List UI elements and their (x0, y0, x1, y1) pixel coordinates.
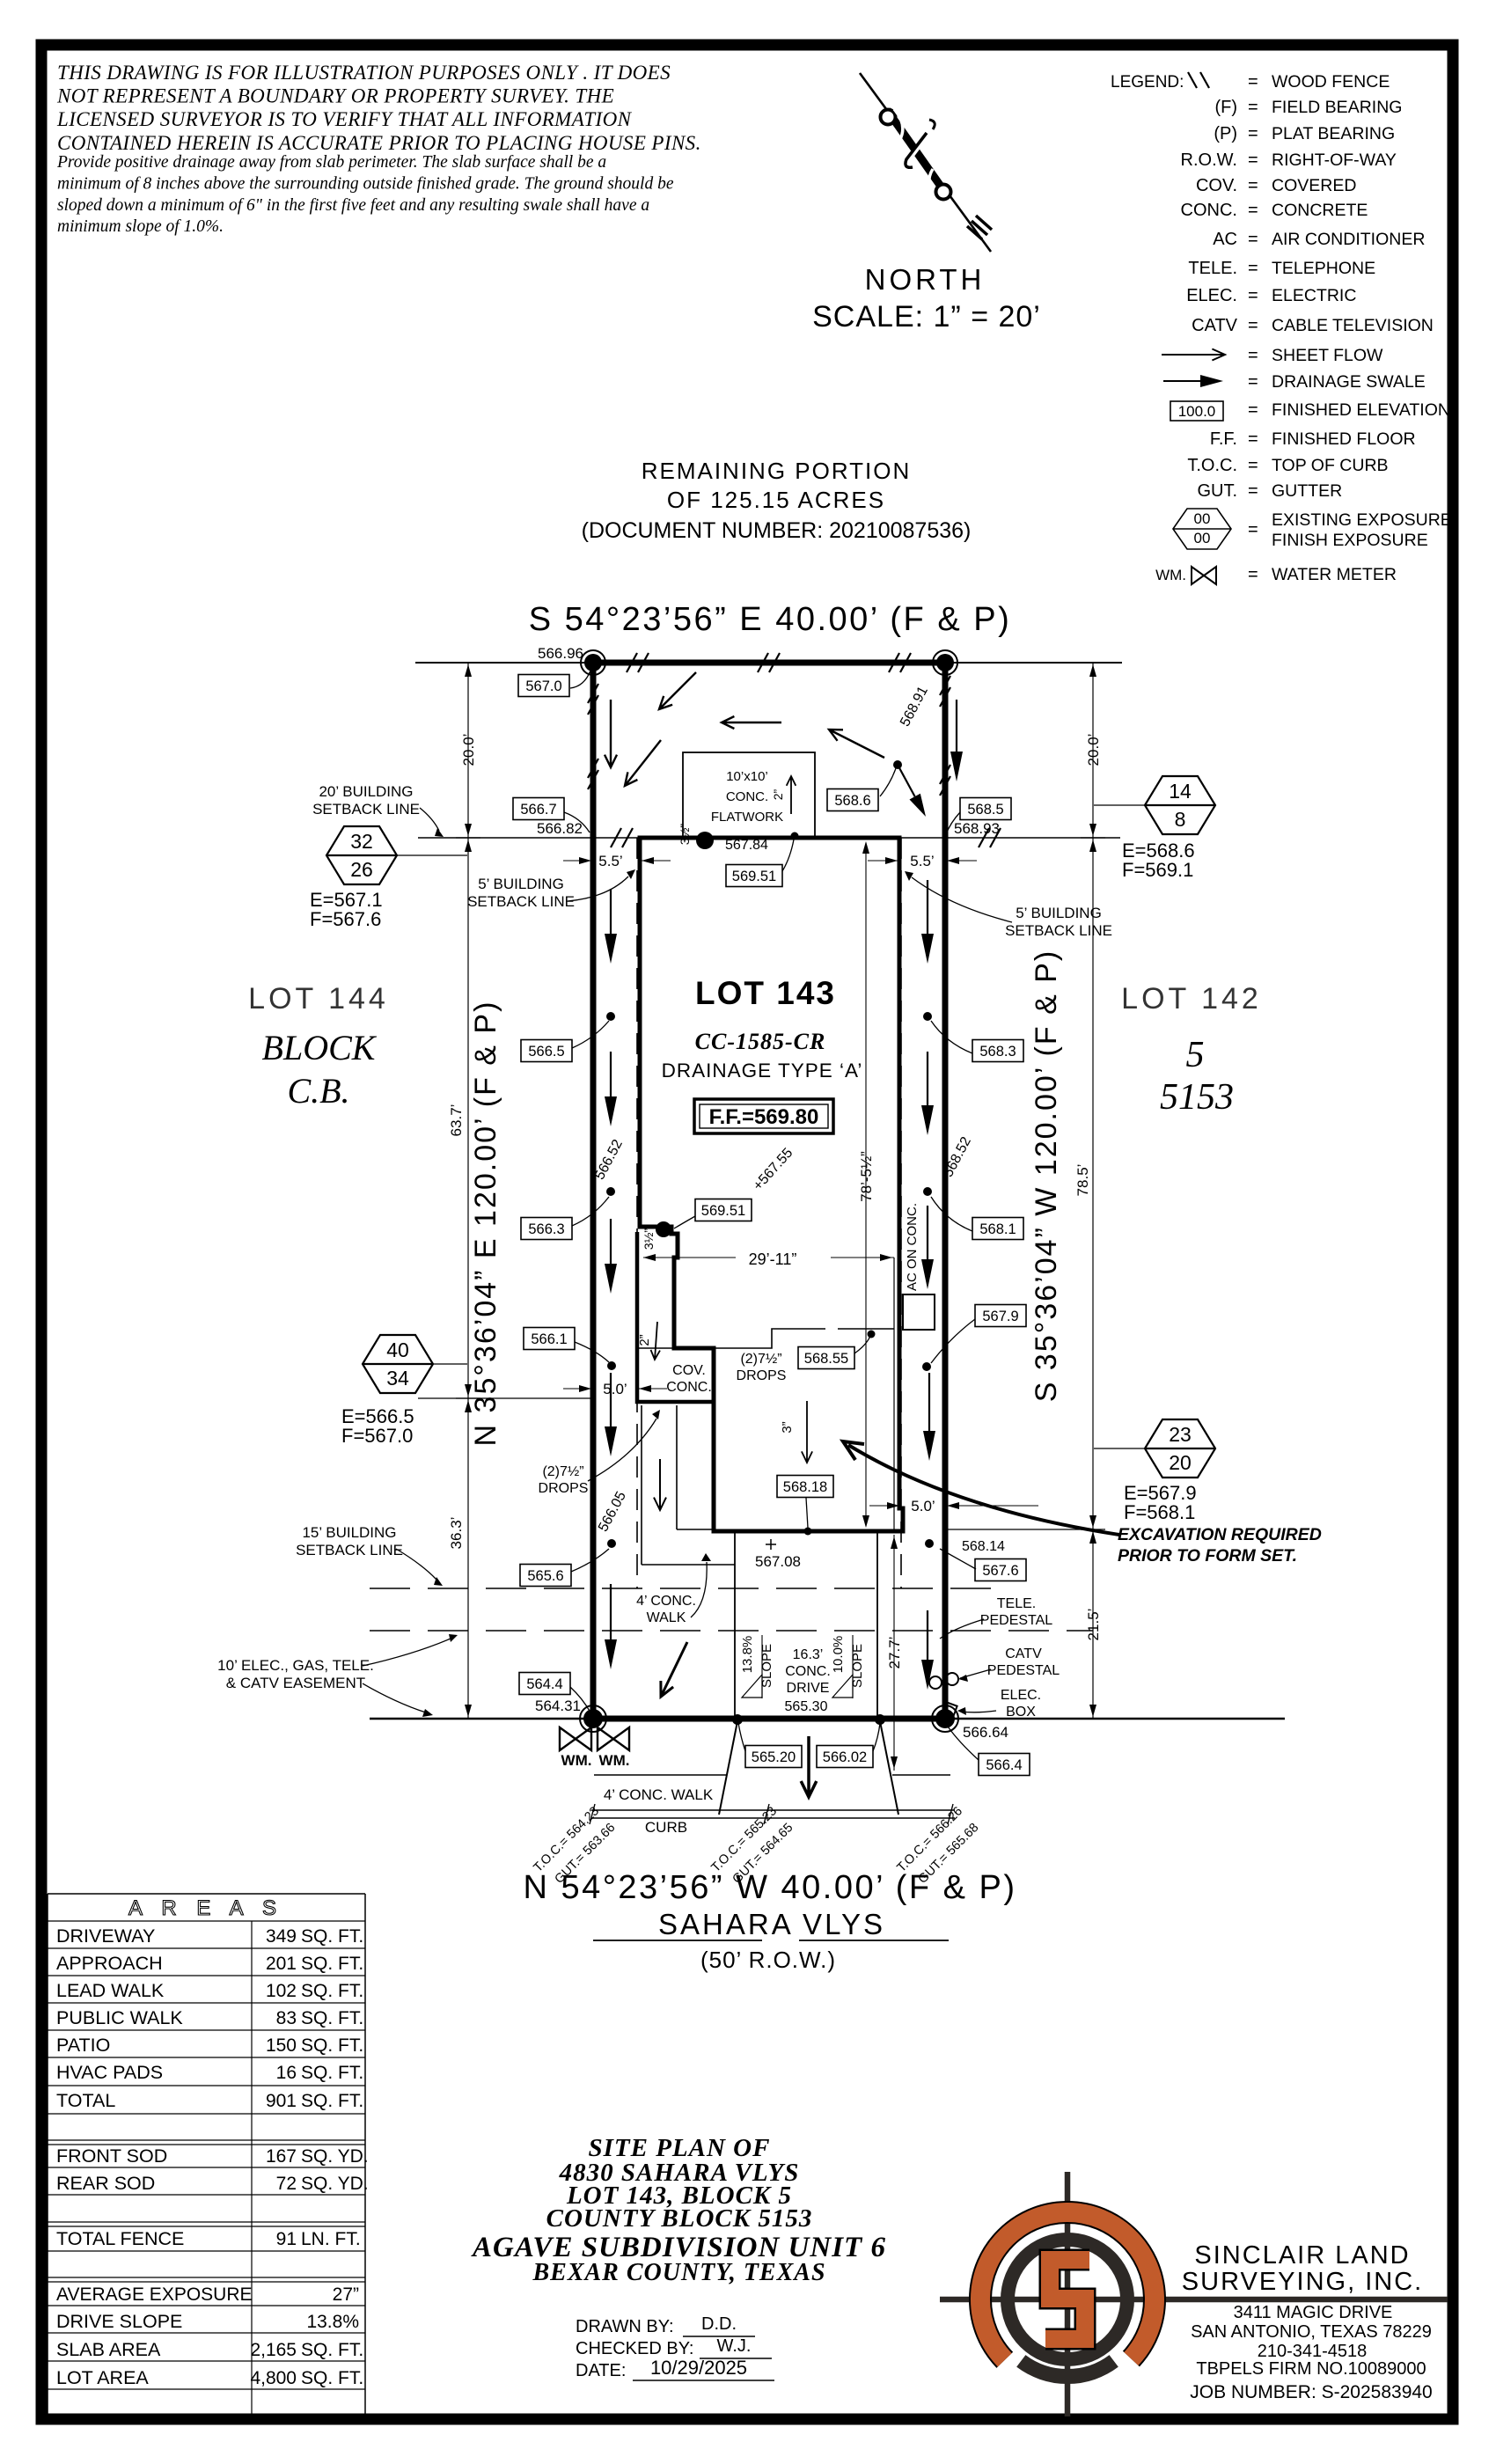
svg-text:SQ. FT.: SQ. FT. (301, 2340, 363, 2360)
svg-text:minimum of 8 inches above the: minimum of 8 inches above the surroundin… (57, 174, 674, 193)
svg-text:D.D.: D.D. (701, 2314, 737, 2334)
svg-text:C.B.: C.B. (287, 1071, 349, 1111)
svg-text:20.0’: 20.0’ (1085, 734, 1102, 766)
svg-text:WATER METER: WATER METER (1272, 565, 1397, 584)
svg-text:COV.: COV. (672, 1363, 706, 1378)
svg-text:10/29/2025: 10/29/2025 (650, 2357, 747, 2379)
svg-text:SURVEYING, INC.: SURVEYING, INC. (1182, 2268, 1423, 2296)
svg-text:W.J.: W.J. (717, 2336, 752, 2356)
svg-text:TBPELS FIRM NO.10089000: TBPELS FIRM NO.10089000 (1196, 2359, 1426, 2379)
svg-text:564.31: 564.31 (535, 1698, 581, 1714)
svg-text:CONC.: CONC. (666, 1380, 712, 1395)
svg-text:SQ. FT.: SQ. FT. (301, 1926, 363, 1947)
svg-text:210-341-4518: 210-341-4518 (1258, 2342, 1368, 2361)
svg-text:83: 83 (276, 2008, 297, 2028)
svg-text:AC ON CONC.: AC ON CONC. (905, 1203, 920, 1291)
svg-text:3½”: 3½” (642, 1228, 656, 1250)
svg-text:SQ. FT.: SQ. FT. (301, 2008, 363, 2028)
svg-text:DRIVE: DRIVE (787, 1681, 830, 1696)
svg-text:568.1: 568.1 (979, 1221, 1016, 1237)
svg-text:SAN ANTONIO, TEXAS 78229: SAN ANTONIO, TEXAS 78229 (1191, 2322, 1432, 2342)
svg-text:566.3: 566.3 (528, 1221, 564, 1237)
svg-text:CURB: CURB (645, 1819, 687, 1836)
svg-text:(50’ R.O.W.): (50’ R.O.W.) (700, 1947, 836, 1973)
svg-text:GUT.: GUT. (1197, 481, 1237, 501)
svg-text:5.0’: 5.0’ (911, 1498, 935, 1514)
svg-text:10.0%: 10.0% (831, 1636, 846, 1674)
svg-text:PEDESTAL: PEDESTAL (987, 1663, 1060, 1678)
svg-text:5153: 5153 (1160, 1077, 1234, 1118)
svg-text:72: 72 (276, 2174, 297, 2194)
svg-text:SETBACK LINE: SETBACK LINE (312, 801, 420, 818)
svg-text:PRIOR TO FORM SET.: PRIOR TO FORM SET. (1118, 1546, 1297, 1566)
svg-text:27”: 27” (333, 2284, 359, 2305)
svg-text:567.9: 567.9 (982, 1309, 1018, 1324)
svg-text:=: = (1248, 456, 1258, 475)
svg-text:CHECKED BY:: CHECKED BY: (576, 2339, 693, 2358)
svg-text:AVERAGE EXPOSURE: AVERAGE EXPOSURE (56, 2284, 253, 2305)
svg-text:13.8%: 13.8% (740, 1636, 755, 1674)
svg-text:SQ. FT.: SQ. FT. (301, 2368, 363, 2388)
svg-text:00: 00 (1194, 510, 1211, 527)
svg-text:NORTH: NORTH (865, 263, 986, 296)
svg-text:565.20: 565.20 (752, 1749, 796, 1765)
svg-text:PEDESTAL: PEDESTAL (980, 1613, 1053, 1628)
svg-text:PUBLIC WALK: PUBLIC WALK (56, 2007, 183, 2028)
svg-text:LOT 143: LOT 143 (695, 975, 836, 1011)
svg-text:=: = (1248, 98, 1258, 117)
svg-text:WM.: WM. (561, 1752, 592, 1769)
svg-text:20’ BUILDING: 20’ BUILDING (319, 783, 413, 800)
svg-text:DRAINAGE SWALE: DRAINAGE SWALE (1272, 372, 1426, 392)
svg-text:63.7’: 63.7’ (448, 1104, 465, 1137)
svg-text:=: = (1248, 150, 1258, 170)
svg-text:LICENSED SURVEYOR IS TO VERIFY: LICENSED SURVEYOR IS TO VERIFY THAT ALL … (56, 108, 633, 130)
svg-text:5’ BUILDING: 5’ BUILDING (478, 876, 564, 892)
svg-text:ELECTRIC: ELECTRIC (1272, 286, 1356, 305)
svg-text:565.30: 565.30 (785, 1699, 828, 1714)
svg-text:APPROACH: APPROACH (56, 1953, 163, 1974)
svg-text:Provide positive drainage away: Provide positive drainage away from slab… (56, 153, 606, 172)
svg-text:00: 00 (1194, 530, 1211, 546)
svg-text:FLATWORK: FLATWORK (711, 810, 783, 825)
svg-text:LOT AREA: LOT AREA (56, 2367, 149, 2388)
svg-text:CABLE TELEVISION: CABLE TELEVISION (1272, 316, 1434, 335)
svg-text:FINISHED ELEVATION: FINISHED ELEVATION (1272, 400, 1450, 420)
svg-text:=: = (1248, 429, 1258, 449)
svg-text:WM.: WM. (1155, 567, 1186, 583)
svg-text:566.7: 566.7 (520, 802, 556, 818)
svg-text:F.F.=569.80: F.F.=569.80 (709, 1105, 819, 1129)
svg-text:4,800: 4,800 (250, 2368, 297, 2388)
svg-text:CATV: CATV (1005, 1646, 1042, 1661)
svg-text:568.5: 568.5 (967, 802, 1003, 818)
svg-text:=: = (1248, 124, 1258, 143)
svg-text:150: 150 (266, 2035, 297, 2056)
svg-text:567.08: 567.08 (755, 1553, 801, 1570)
svg-text:78.5’: 78.5’ (1074, 1164, 1091, 1197)
svg-text:568.93: 568.93 (954, 820, 1000, 837)
svg-text:=: = (1248, 372, 1258, 392)
svg-text:N 54°23’56” W 40.00’ (F & P): N 54°23’56” W 40.00’ (F & P) (523, 1869, 1016, 1906)
svg-text:ELEC.: ELEC. (1001, 1688, 1041, 1703)
svg-text:2”: 2” (771, 788, 785, 800)
svg-text:RIGHT-OF-WAY: RIGHT-OF-WAY (1272, 150, 1397, 170)
svg-text:SHEET FLOW: SHEET FLOW (1272, 346, 1383, 365)
svg-text:567.0: 567.0 (525, 678, 561, 694)
svg-text:=: = (1248, 520, 1258, 539)
svg-text:CONC.: CONC. (785, 1664, 831, 1679)
svg-text:F=568.1: F=568.1 (1124, 1501, 1195, 1523)
svg-text:LOT 142: LOT 142 (1121, 982, 1262, 1016)
svg-text:5’ BUILDING: 5’ BUILDING (1016, 905, 1102, 921)
svg-text:REMAINING PORTION: REMAINING PORTION (642, 458, 912, 484)
svg-text:(DOCUMENT NUMBER: 20210087536: (DOCUMENT NUMBER: 20210087536) (582, 518, 972, 543)
svg-text:PLAT BEARING: PLAT BEARING (1272, 124, 1395, 143)
svg-text:40: 40 (386, 1338, 409, 1361)
svg-text:CONC.: CONC. (1181, 201, 1237, 220)
svg-text:349: 349 (266, 1926, 297, 1947)
svg-text:4’ CONC. WALK: 4’ CONC. WALK (604, 1786, 714, 1803)
svg-text:26: 26 (350, 858, 373, 881)
svg-text:5.5’: 5.5’ (910, 853, 934, 869)
svg-text:569.51: 569.51 (732, 869, 776, 884)
svg-text:WM.: WM. (599, 1752, 630, 1769)
svg-text:SETBACK LINE: SETBACK LINE (1005, 922, 1112, 939)
svg-text:JOB NUMBER: S-202583940: JOB NUMBER: S-202583940 (1190, 2382, 1432, 2402)
svg-text:TELE.: TELE. (997, 1596, 1036, 1611)
svg-text:78’-5½”: 78’-5½” (858, 1151, 875, 1202)
svg-text:(2)7½”: (2)7½” (740, 1352, 781, 1367)
svg-text:OF 125.15 ACRES: OF 125.15 ACRES (667, 487, 885, 513)
svg-text:SQ. YD.: SQ. YD. (301, 2174, 369, 2194)
svg-text:DRIVEWAY: DRIVEWAY (56, 1925, 155, 1947)
svg-text:=: = (1248, 176, 1258, 195)
svg-text:SINCLAIR LAND: SINCLAIR LAND (1194, 2241, 1410, 2270)
svg-text:16: 16 (276, 2063, 297, 2083)
svg-text:SETBACK LINE: SETBACK LINE (467, 893, 575, 910)
svg-text:CONCRETE: CONCRETE (1272, 201, 1368, 220)
svg-text:=: = (1248, 286, 1258, 305)
svg-text:100.0: 100.0 (1178, 403, 1216, 420)
svg-text:567.84: 567.84 (725, 838, 768, 853)
svg-text:SAHARA VLYS: SAHARA VLYS (658, 1908, 885, 1940)
svg-text:CONC.: CONC. (726, 789, 768, 804)
svg-text:CATV: CATV (1192, 316, 1238, 335)
svg-text:DATE:: DATE: (576, 2361, 626, 2380)
svg-text:569.51: 569.51 (701, 1203, 745, 1219)
svg-text:568.55: 568.55 (804, 1351, 848, 1367)
svg-text:=: = (1248, 565, 1258, 584)
svg-text:567.6: 567.6 (982, 1563, 1018, 1579)
svg-text:SQ. FT.: SQ. FT. (301, 1981, 363, 2001)
svg-text:(F): (F) (1214, 98, 1237, 117)
svg-text:10’x10’: 10’x10’ (726, 769, 768, 784)
svg-text:TELEPHONE: TELEPHONE (1272, 259, 1375, 278)
svg-text:WALK: WALK (647, 1610, 686, 1625)
svg-text:167: 167 (266, 2146, 297, 2167)
svg-text:F=567.0: F=567.0 (341, 1425, 413, 1447)
svg-text:=: = (1248, 201, 1258, 220)
svg-text:566.96: 566.96 (538, 645, 583, 662)
svg-text:S 35°36’04” W 120.00’ (F & P): S 35°36’04” W 120.00’ (F & P) (1030, 950, 1063, 1402)
svg-text:WOOD FENCE: WOOD FENCE (1272, 72, 1390, 92)
svg-text:566.02: 566.02 (823, 1749, 867, 1765)
svg-text:THIS DRAWING IS FOR ILLUSTRATI: THIS DRAWING IS FOR ILLUSTRATION PURPOSE… (57, 62, 671, 84)
svg-text:SQ. YD.: SQ. YD. (301, 2146, 369, 2167)
svg-text:N 35°36’04” E 120.00’ (F & P): N 35°36’04” E 120.00’ (F & P) (469, 1001, 502, 1447)
svg-text:23: 23 (1169, 1423, 1192, 1446)
svg-text:ELEC.: ELEC. (1186, 286, 1237, 305)
svg-text:20.0’: 20.0’ (460, 734, 477, 766)
svg-text:DROPS: DROPS (737, 1368, 787, 1383)
svg-text:=: = (1248, 346, 1258, 365)
svg-text:COUNTY BLOCK 5153: COUNTY BLOCK 5153 (546, 2204, 813, 2233)
svg-text:DRAWN BY:: DRAWN BY: (576, 2317, 674, 2336)
svg-text:BLOCK: BLOCK (262, 1028, 378, 1067)
svg-text:566.4: 566.4 (986, 1757, 1022, 1773)
svg-text:568.3: 568.3 (979, 1044, 1016, 1060)
svg-text:102: 102 (266, 1981, 297, 2001)
svg-text:2,165: 2,165 (250, 2340, 297, 2360)
svg-text:CONTAINED HEREIN IS ACCURATE P: CONTAINED HEREIN IS ACCURATE PRIOR TO PL… (57, 132, 701, 154)
svg-text:564.4: 564.4 (526, 1676, 562, 1692)
svg-text:=: = (1248, 481, 1258, 501)
svg-text:(2)7½”: (2)7½” (542, 1464, 583, 1479)
svg-text:901: 901 (266, 2091, 297, 2111)
svg-text:5.5’: 5.5’ (598, 853, 622, 869)
svg-text:TOTAL FENCE: TOTAL FENCE (56, 2228, 184, 2249)
svg-text:(P): (P) (1214, 124, 1237, 143)
svg-text:TOTAL: TOTAL (56, 2090, 115, 2111)
svg-text:4’ CONC.: 4’ CONC. (636, 1594, 696, 1609)
svg-text:566.64: 566.64 (963, 1724, 1008, 1741)
svg-text:AC: AC (1213, 230, 1237, 249)
svg-text:36.3’: 36.3’ (448, 1517, 465, 1550)
svg-text:13.8%: 13.8% (306, 2312, 359, 2332)
svg-text:FINISHED FLOOR: FINISHED FLOOR (1272, 429, 1416, 449)
svg-text:FIELD BEARING: FIELD BEARING (1272, 98, 1402, 117)
svg-text:COV.: COV. (1196, 176, 1237, 195)
svg-text:15’ BUILDING: 15’ BUILDING (302, 1524, 396, 1541)
svg-text:LOT 144: LOT 144 (248, 982, 389, 1016)
svg-text:EXCAVATION REQUIRED: EXCAVATION REQUIRED (1118, 1525, 1322, 1544)
svg-text:34: 34 (386, 1367, 409, 1390)
svg-text:BEXAR COUNTY, TEXAS: BEXAR COUNTY, TEXAS (532, 2259, 825, 2286)
svg-text:SQ. FT.: SQ. FT. (301, 1954, 363, 1974)
svg-text:PATIO: PATIO (56, 2035, 110, 2056)
svg-text:=: = (1248, 259, 1258, 278)
svg-text:SQ. FT.: SQ. FT. (301, 2035, 363, 2056)
svg-text:=: = (1248, 316, 1258, 335)
svg-text:R.O.W.: R.O.W. (1181, 150, 1237, 170)
svg-text:SQ. FT.: SQ. FT. (301, 2091, 363, 2111)
svg-text:568.14: 568.14 (962, 1539, 1005, 1554)
svg-text:=: = (1248, 72, 1258, 92)
svg-text:10’ ELEC., GAS, TELE.: 10’ ELEC., GAS, TELE. (217, 1657, 374, 1674)
svg-text:201: 201 (266, 1954, 297, 1974)
svg-text:8: 8 (1175, 808, 1186, 831)
svg-text:BOX: BOX (1006, 1705, 1036, 1720)
svg-text:32: 32 (350, 830, 373, 853)
svg-text:29’-11”: 29’-11” (749, 1250, 797, 1268)
svg-text:566.5: 566.5 (528, 1044, 564, 1060)
svg-text:27.7’: 27.7’ (886, 1637, 903, 1669)
svg-text:DRAINAGE TYPE ‘A’: DRAINAGE TYPE ‘A’ (662, 1060, 863, 1082)
svg-text:EXISTING EXPOSURE: EXISTING EXPOSURE (1272, 510, 1452, 530)
svg-text:TELE.: TELE. (1188, 259, 1237, 278)
svg-text:3”: 3” (780, 1421, 795, 1433)
svg-text:DRIVE SLOPE: DRIVE SLOPE (56, 2311, 182, 2332)
svg-text:CC-1585-CR: CC-1585-CR (695, 1029, 826, 1054)
svg-text:F.F.: F.F. (1210, 429, 1237, 449)
svg-text:F=569.1: F=569.1 (1122, 859, 1193, 881)
svg-text:565.6: 565.6 (527, 1568, 563, 1584)
svg-text:sloped down a minimum of 6" in: sloped down a minimum of 6" in the first… (57, 196, 649, 215)
svg-text:568.6: 568.6 (834, 793, 870, 809)
svg-text:14: 14 (1169, 780, 1192, 803)
svg-text:T.O.C.: T.O.C. (1187, 456, 1237, 475)
svg-text:566.1: 566.1 (531, 1331, 567, 1347)
svg-text:SETBACK LINE: SETBACK LINE (296, 1542, 403, 1558)
svg-text:LN. FT.: LN. FT. (301, 2229, 361, 2249)
svg-text:A R E A S: A R E A S (128, 1896, 283, 1920)
svg-text:5: 5 (1186, 1035, 1205, 1075)
svg-text:LEAD WALK: LEAD WALK (56, 1980, 165, 2001)
svg-text:TOP OF CURB: TOP OF CURB (1272, 456, 1389, 475)
svg-text:21.5’: 21.5’ (1085, 1609, 1102, 1641)
svg-text:HVAC PADS: HVAC PADS (56, 2062, 163, 2083)
svg-text:& CATV EASEMENT: & CATV EASEMENT (226, 1675, 365, 1691)
svg-text:S 54°23’56” E 40.00’ (F & P): S 54°23’56” E 40.00’ (F & P) (529, 601, 1011, 638)
svg-text:SQ. FT.: SQ. FT. (301, 2063, 363, 2083)
svg-text:GUTTER: GUTTER (1272, 481, 1342, 501)
svg-text:91: 91 (276, 2229, 297, 2249)
svg-text:DROPS: DROPS (539, 1481, 589, 1496)
svg-text:=: = (1248, 400, 1258, 420)
svg-text:20: 20 (1169, 1451, 1192, 1474)
svg-text:minimum slope of 1.0%.: minimum slope of 1.0%. (57, 217, 224, 236)
svg-text:3½”: 3½” (678, 824, 692, 845)
svg-text:COVERED: COVERED (1272, 176, 1356, 195)
svg-text:16.3’: 16.3’ (793, 1647, 824, 1662)
svg-text:F=567.6: F=567.6 (310, 908, 381, 930)
svg-text:=: = (1248, 230, 1258, 249)
svg-text:568.18: 568.18 (783, 1479, 827, 1495)
svg-text:FRONT SOD: FRONT SOD (56, 2145, 167, 2167)
svg-text:SLAB AREA: SLAB AREA (56, 2339, 161, 2360)
svg-text:FINISH EXPOSURE: FINISH EXPOSURE (1272, 531, 1428, 550)
svg-text:LEGEND:: LEGEND: (1111, 73, 1184, 92)
svg-text:NOT REPRESENT A BOUNDARY OR PR: NOT REPRESENT A BOUNDARY OR PROPERTY SUR… (56, 85, 614, 107)
svg-text:REAR SOD: REAR SOD (56, 2173, 155, 2194)
svg-text:566.82: 566.82 (537, 820, 583, 837)
svg-text:SCALE: 1” = 20’: SCALE: 1” = 20’ (812, 300, 1041, 334)
svg-text:2”: 2” (637, 1334, 652, 1346)
svg-text:AIR CONDITIONER: AIR CONDITIONER (1272, 230, 1425, 249)
svg-text:5.0’: 5.0’ (603, 1381, 627, 1397)
svg-text:3411 MAGIC DRIVE: 3411 MAGIC DRIVE (1234, 2303, 1393, 2322)
